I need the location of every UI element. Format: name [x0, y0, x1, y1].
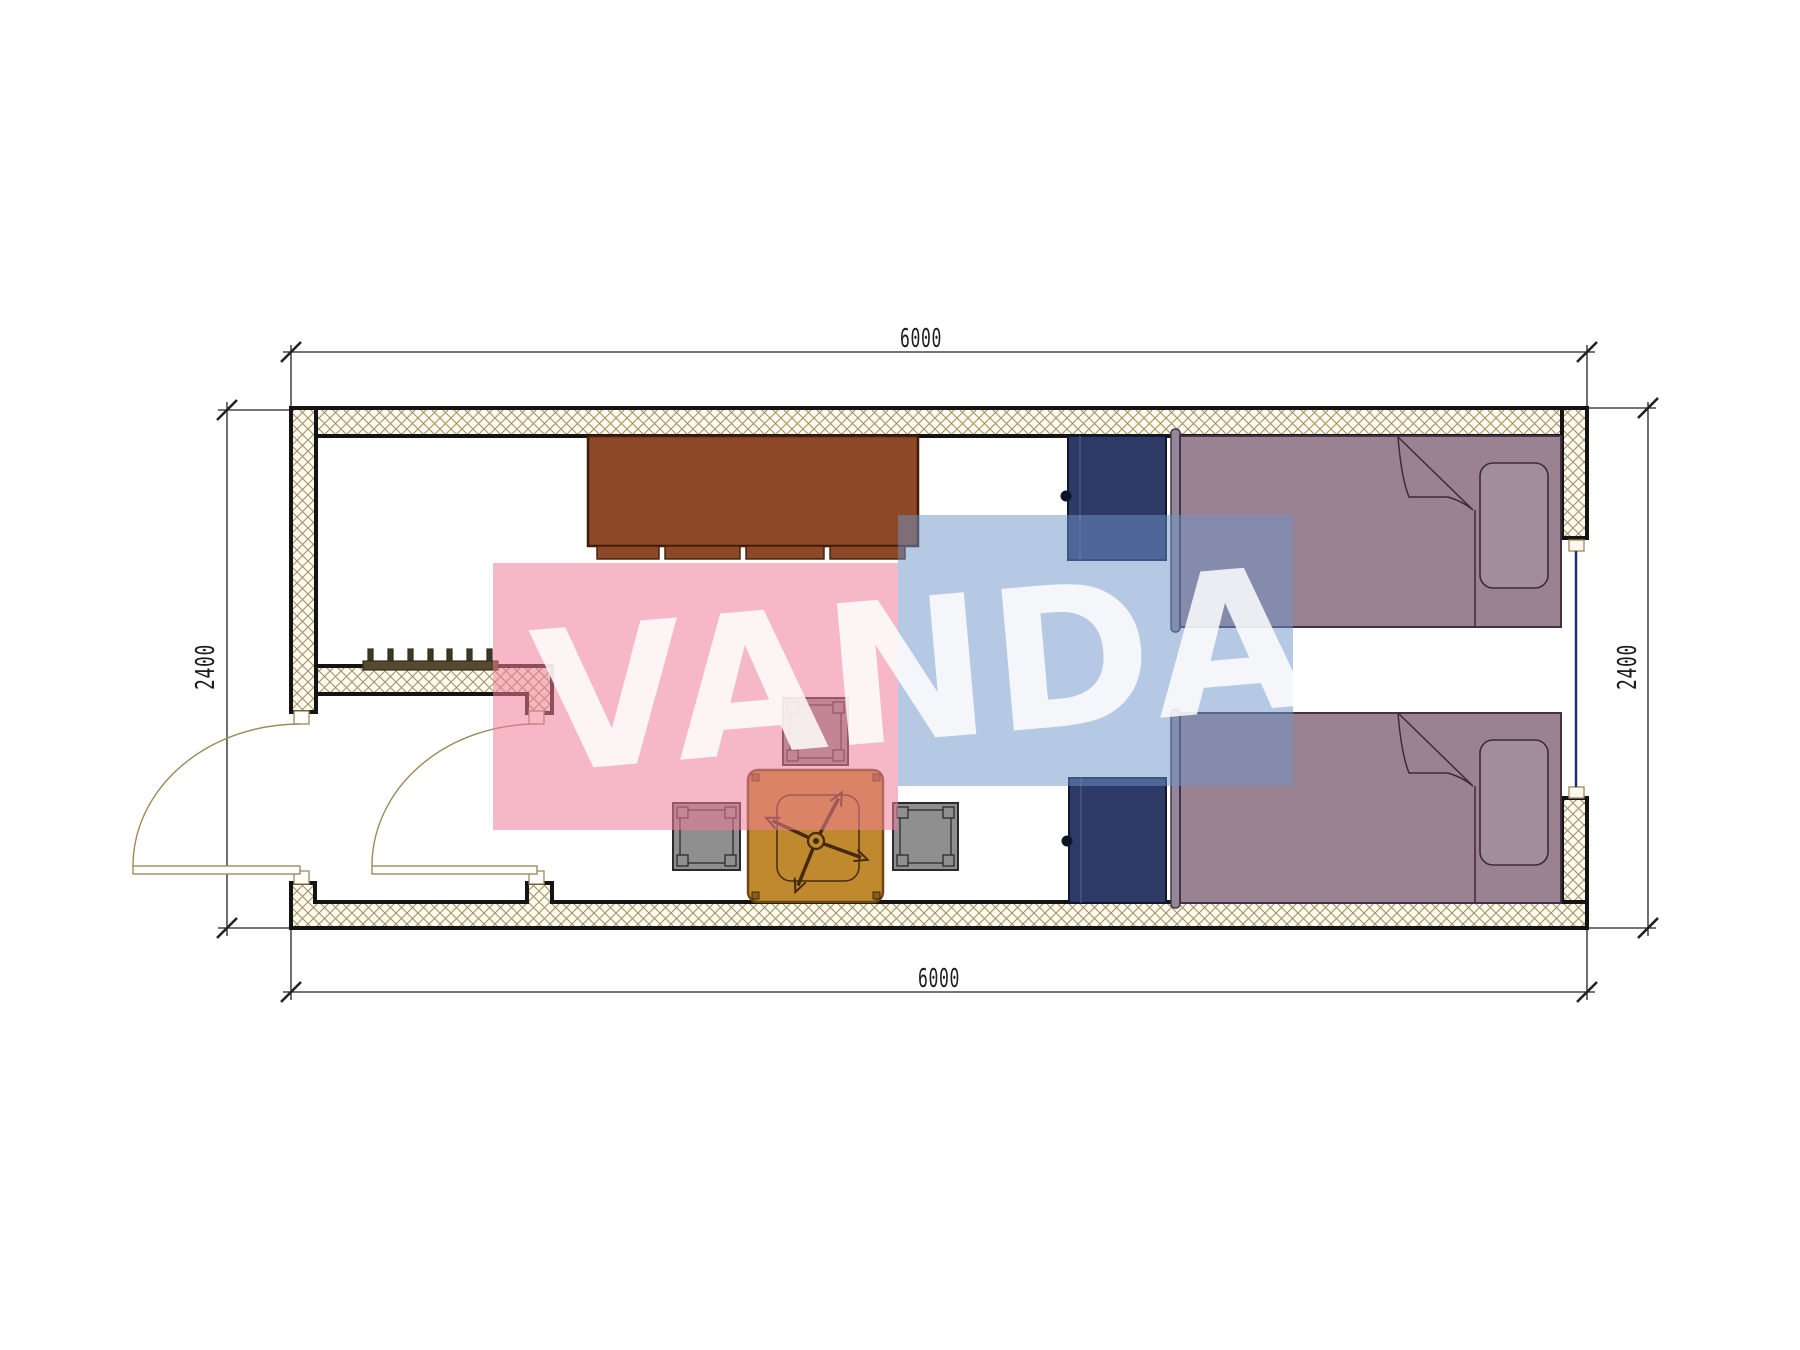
door-swing-arc — [133, 724, 300, 866]
desk — [588, 436, 918, 559]
entry-door — [133, 711, 309, 884]
window-sill — [1569, 787, 1584, 798]
radiator — [363, 649, 498, 670]
door-leaf — [133, 866, 300, 874]
radiator-tooth — [368, 649, 373, 662]
door-jamb — [294, 711, 309, 724]
stool-leg — [725, 855, 736, 866]
window — [1569, 540, 1584, 798]
desk-front-panels — [597, 546, 905, 559]
dim-label-bottom: 6000 — [918, 964, 960, 994]
table-corner — [873, 892, 880, 899]
wall-top — [291, 408, 1587, 436]
dim-label-left: 2400 — [191, 644, 221, 690]
window-sill — [1569, 540, 1584, 551]
table-corner — [752, 892, 759, 899]
stool-leg — [943, 807, 954, 818]
stool-right — [893, 803, 958, 870]
fan-hub-center — [813, 838, 819, 844]
desk-top — [588, 436, 918, 546]
stool-leg — [897, 855, 908, 866]
radiator-tooth — [408, 649, 413, 662]
floor-plan-drawing: 6000 6000 2400 2400 — [0, 0, 1800, 1350]
wall-right-upper — [1562, 408, 1587, 538]
radiator-body — [363, 661, 498, 670]
desk-panel — [746, 546, 824, 559]
dim-label-top: 6000 — [900, 324, 942, 354]
cabinet-body — [1069, 778, 1166, 903]
stool-leg — [897, 807, 908, 818]
dimension-left — [217, 400, 289, 938]
desk-panel — [830, 546, 905, 559]
wardrobe-cabinet-bottom — [1062, 778, 1167, 903]
cabinet-handle — [1061, 491, 1072, 502]
wall-left — [291, 408, 316, 712]
radiator-tooth — [487, 649, 492, 662]
desk-panel — [665, 546, 740, 559]
stool-leg — [677, 855, 688, 866]
radiator-tooth — [428, 649, 433, 662]
cabinet-handle — [1062, 836, 1073, 847]
pillow — [1480, 740, 1548, 865]
stool-leg — [943, 855, 954, 866]
dim-label-right: 2400 — [1613, 644, 1643, 690]
radiator-tooth — [447, 649, 452, 662]
pillow — [1480, 463, 1548, 588]
floor-plan-page: 6000 6000 2400 2400 — [0, 0, 1800, 1350]
radiator-tooth — [467, 649, 472, 662]
radiator-tooth — [388, 649, 393, 662]
door-leaf — [372, 866, 537, 874]
desk-panel — [597, 546, 659, 559]
